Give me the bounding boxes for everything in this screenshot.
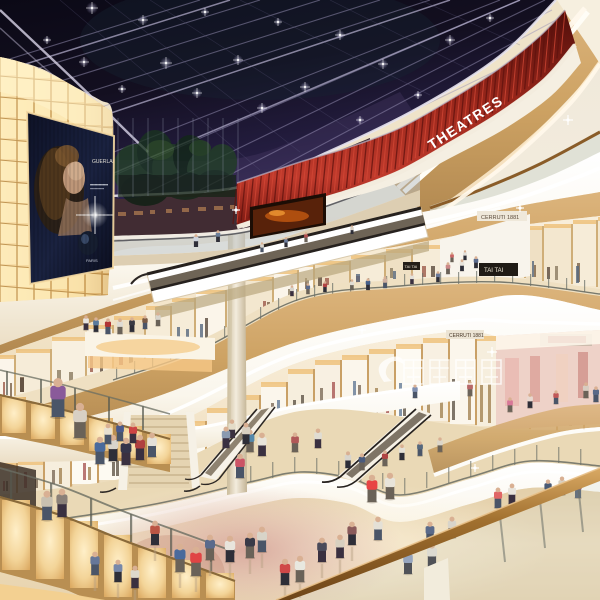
- svg-text:TAI TAI: TAI TAI: [484, 268, 504, 274]
- svg-text:CERRUTI 1881: CERRUTI 1881: [481, 215, 519, 221]
- svg-text:PARIS: PARIS: [86, 258, 98, 263]
- svg-text:CERRUTI 1881: CERRUTI 1881: [449, 333, 484, 339]
- svg-text:TAI TAI: TAI TAI: [405, 264, 418, 269]
